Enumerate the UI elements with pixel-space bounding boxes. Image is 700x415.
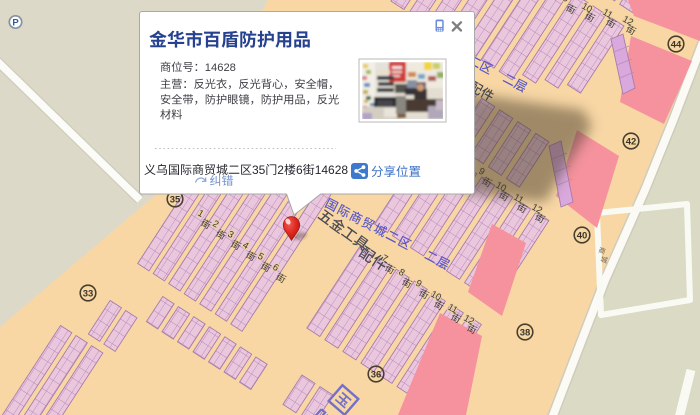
svg-text:14628: 14628 [315,163,349,177]
svg-text:35: 35 [252,163,266,177]
svg-text:40: 40 [577,230,588,241]
svg-text:6: 6 [296,163,303,177]
svg-text:42: 42 [626,136,637,147]
svg-text:44: 44 [671,39,682,50]
svg-text:2: 2 [277,163,284,177]
svg-text:14628: 14628 [205,62,236,74]
svg-text:36: 36 [371,369,382,380]
svg-text:P: P [12,18,19,29]
svg-text:38: 38 [520,327,531,338]
svg-text:35: 35 [170,194,181,205]
svg-text:33: 33 [83,288,94,299]
